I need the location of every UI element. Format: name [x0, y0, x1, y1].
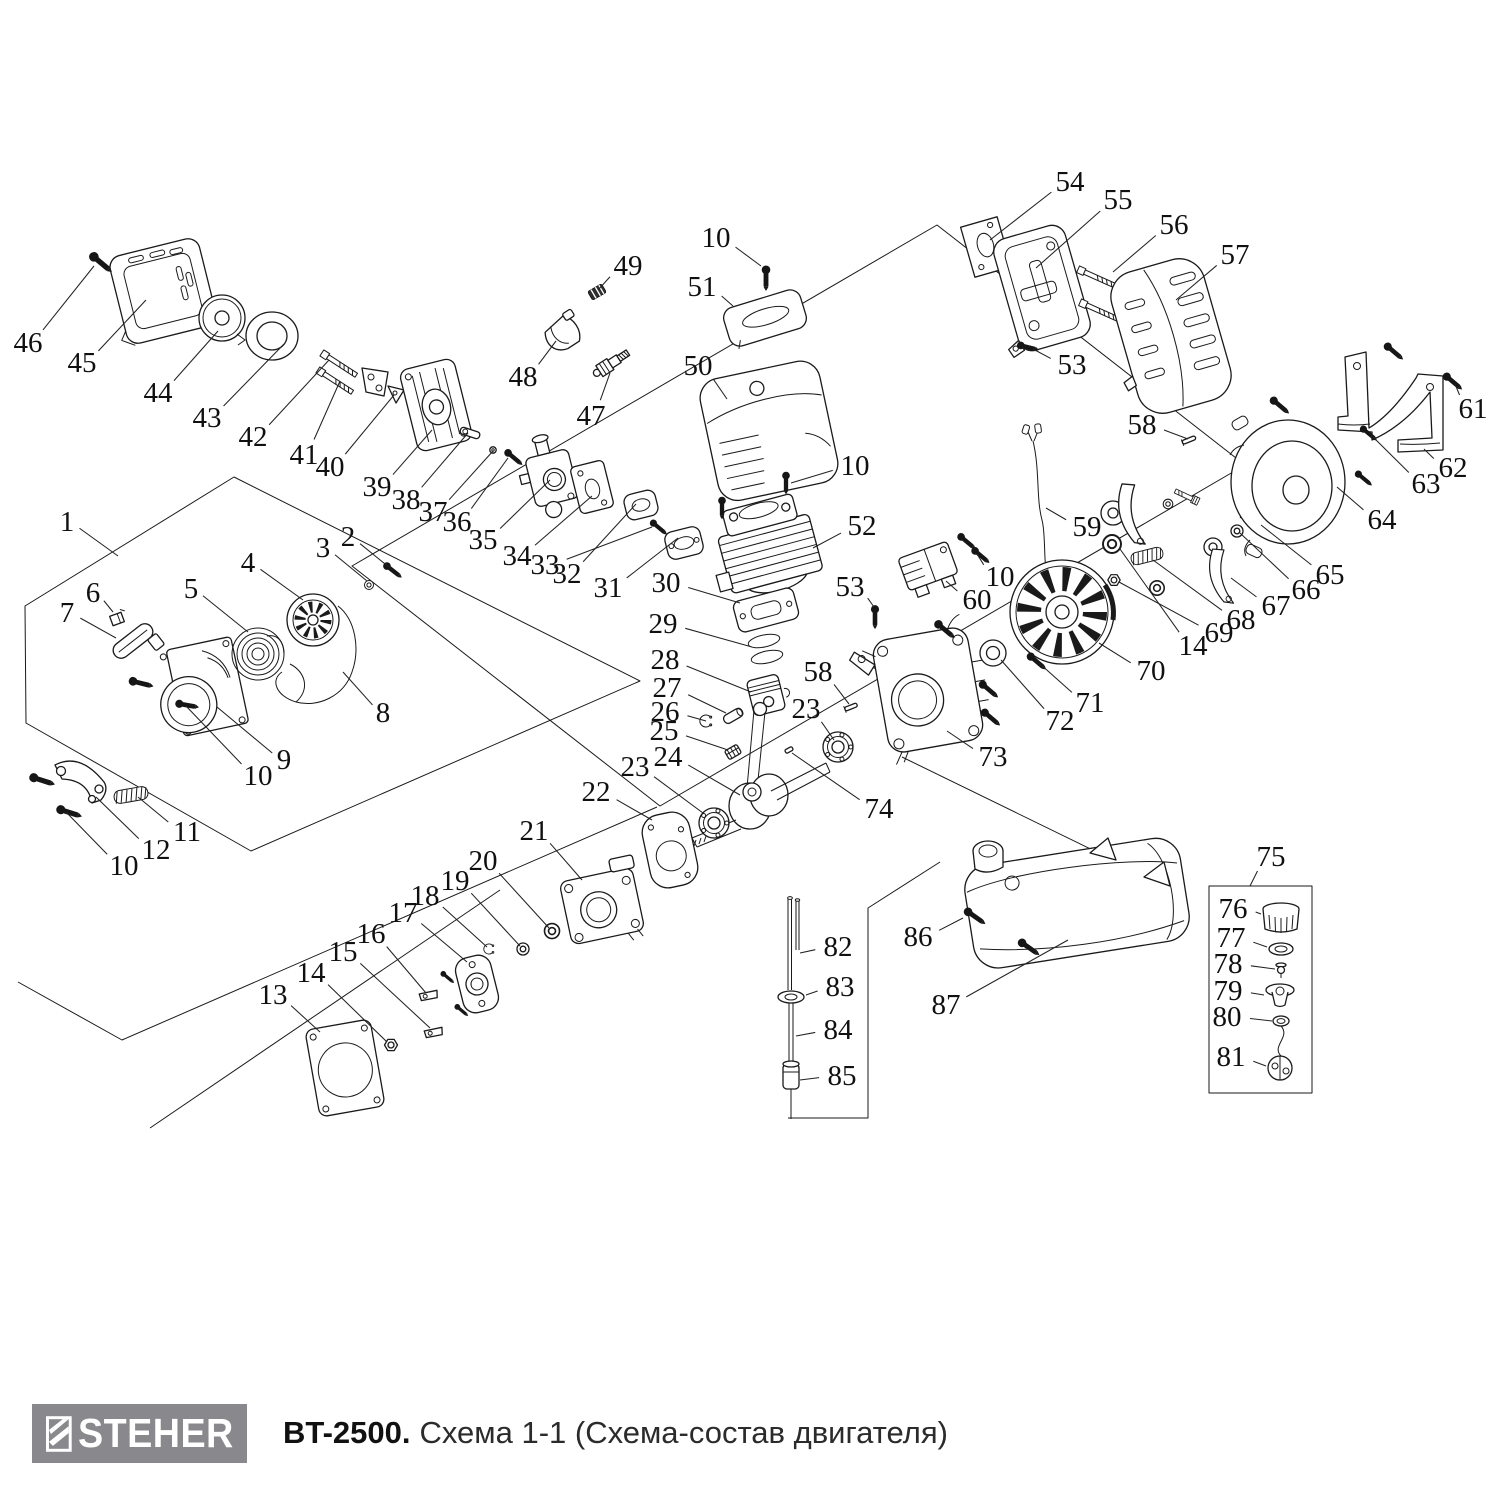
leader-line-46 — [43, 266, 94, 330]
leader-line-37 — [449, 451, 493, 500]
part-10-screw — [762, 265, 771, 290]
leader-line-53 — [1033, 349, 1051, 358]
part-label-57: 57 — [1221, 239, 1250, 271]
part-15-clip — [424, 1025, 444, 1039]
part-label-73: 73 — [979, 741, 1008, 773]
part-label-75: 75 — [1257, 841, 1286, 873]
leader-line-11 — [138, 797, 168, 822]
part-64-fan-housing — [1230, 415, 1345, 559]
part-label-39: 39 — [363, 471, 392, 503]
leader-line-71 — [1039, 663, 1072, 692]
part-label-6: 6 — [86, 577, 101, 609]
part-56-bolt — [1077, 266, 1117, 289]
diagram-title: BT-2500. Схема 1-1 (Схема-состав двигате… — [283, 1398, 948, 1468]
part-label-10: 10 — [244, 760, 273, 792]
part-72-bearing — [980, 640, 1006, 666]
part-label-44: 44 — [144, 377, 174, 409]
part-label-3: 3 — [316, 532, 331, 564]
leader-line-76 — [1256, 912, 1261, 914]
part-13-mount-plate — [305, 1019, 385, 1117]
part-label-18: 18 — [411, 880, 440, 912]
leader-line-48 — [539, 341, 556, 364]
leader-line-86 — [939, 918, 963, 930]
leader-line-67 — [1231, 578, 1256, 597]
part-4-rope-reel — [287, 594, 339, 646]
part-78-valve — [1276, 963, 1286, 978]
leader-line-84 — [796, 1032, 815, 1036]
part-label-54: 54 — [1056, 166, 1086, 198]
leader-line-41 — [314, 381, 340, 439]
leader-line-10 — [736, 247, 761, 266]
part-label-83: 83 — [826, 971, 855, 1003]
part-53-screw — [871, 605, 879, 629]
part-label-62: 62 — [1439, 452, 1468, 484]
part-label-81: 81 — [1217, 1041, 1246, 1073]
part-22-crankcase-gasket — [639, 809, 701, 891]
leader-line-80 — [1250, 1019, 1272, 1021]
exploded-diagram: 1234567891010111213141516171819202122232… — [0, 0, 1500, 1500]
leader-line-42 — [269, 360, 329, 425]
part-70-flywheel — [1010, 560, 1114, 664]
leader-line-77 — [1253, 942, 1267, 947]
part-61-screw — [1441, 371, 1465, 393]
part-76-81-fuel-cap — [1263, 903, 1299, 1080]
leader-line-83 — [806, 991, 818, 995]
part-label-8: 8 — [376, 697, 391, 729]
part-label-87: 87 — [932, 989, 961, 1021]
part-3-washer — [365, 581, 374, 590]
leader-line-27 — [688, 695, 726, 713]
part-washer — [1150, 581, 1164, 595]
steher-logo-icon — [46, 1416, 72, 1452]
leader-line-82 — [800, 950, 815, 953]
part-label-23: 23 — [792, 693, 821, 725]
leader-line-6 — [104, 601, 113, 612]
leader-line-24 — [688, 765, 740, 795]
schema-subtitle: Схема 1-1 (Схема-состав двигателя) — [420, 1415, 948, 1451]
part-label-53: 53 — [836, 571, 865, 603]
part-label-27: 27 — [653, 672, 682, 704]
part-45-air-filter-cover — [102, 236, 219, 348]
leader-line-18 — [443, 907, 487, 947]
group-line-lower-left — [18, 807, 657, 1040]
part-label-22: 22 — [582, 776, 611, 808]
part-label-40: 40 — [316, 451, 345, 483]
part-label-29: 29 — [649, 608, 678, 640]
part-screw — [977, 679, 1001, 701]
part-label-13: 13 — [259, 979, 288, 1011]
part-label-33: 33 — [531, 549, 560, 581]
part-label-14: 14 — [297, 957, 327, 989]
part-73-crankcase — [845, 612, 997, 769]
part-62-mount-bracket — [1338, 352, 1443, 452]
part-14-washer — [1103, 535, 1121, 553]
part-label-34: 34 — [503, 540, 533, 572]
leader-line-74 — [792, 753, 860, 800]
part-label-42: 42 — [239, 421, 268, 453]
leader-line-26 — [687, 716, 706, 721]
part-47-spark-plug — [590, 347, 631, 380]
part-label-7: 7 — [60, 597, 75, 629]
leader-line-58 — [1164, 430, 1188, 439]
part-label-49: 49 — [614, 250, 643, 282]
leader-line-72 — [1001, 660, 1044, 709]
part-label-10: 10 — [110, 850, 139, 882]
part-screw — [1268, 395, 1292, 417]
part-label-71: 71 — [1076, 687, 1105, 719]
part-5-recoil-spring — [232, 628, 284, 680]
leader-line-51 — [722, 296, 733, 306]
part-label-43: 43 — [193, 402, 222, 434]
leader-line-59 — [1046, 508, 1066, 520]
part-label-59: 59 — [1073, 511, 1102, 543]
part-label-64: 64 — [1368, 504, 1398, 536]
part-label-20: 20 — [469, 845, 498, 877]
part-label-46: 46 — [14, 327, 43, 359]
part-40-choke-lever — [362, 368, 404, 403]
part-label-35: 35 — [469, 524, 498, 556]
part-87-fuel-tank — [961, 835, 1193, 972]
part-label-53: 53 — [1058, 349, 1087, 381]
part-label-66: 66 — [1292, 574, 1321, 606]
part-label-76: 76 — [1219, 893, 1248, 925]
part-label-69: 69 — [1205, 617, 1234, 649]
leader-line-39 — [393, 430, 432, 475]
part-52-cylinder — [701, 490, 826, 605]
part-label-86: 86 — [904, 921, 933, 953]
part-label-2: 2 — [341, 521, 356, 553]
part-44-filter-plate — [199, 295, 245, 345]
part-68-clutch-spring — [1130, 546, 1164, 566]
part-label-80: 80 — [1213, 1001, 1242, 1033]
leader-line-21 — [550, 843, 582, 880]
leader-line-8 — [343, 672, 373, 705]
part-48-spark-plug-cap — [539, 309, 588, 356]
leader-line-13 — [291, 1006, 320, 1032]
part-9-starter-housing — [149, 636, 248, 739]
part-label-10: 10 — [702, 222, 731, 254]
leader-line-53 — [868, 598, 874, 607]
leader-line-44 — [174, 331, 218, 381]
part-label-84: 84 — [824, 1014, 854, 1046]
part-label-5: 5 — [184, 573, 199, 605]
part-50-engine-cover — [696, 357, 841, 504]
part-23-bearing-right — [823, 732, 853, 762]
leader-line-32 — [583, 504, 636, 562]
part-51-top-cover — [721, 287, 810, 351]
part-79-retainer — [1266, 984, 1294, 1007]
part-label-38: 38 — [392, 484, 421, 516]
leader-line-79 — [1251, 993, 1264, 995]
part-label-58: 58 — [1128, 409, 1157, 441]
part-label-28: 28 — [651, 644, 680, 676]
part-31-gasket — [663, 525, 705, 561]
part-36-screw — [503, 447, 525, 467]
leader-line-19 — [471, 893, 520, 946]
part-58-pin — [1181, 434, 1197, 446]
part-label-70: 70 — [1137, 655, 1166, 687]
part-49-clip — [588, 284, 607, 301]
part-74-key — [785, 746, 794, 753]
part-34-gasket — [570, 460, 615, 515]
part-60-ignition-coil — [898, 541, 962, 599]
leader-line-17 — [421, 923, 467, 962]
group-box-fuel-line — [788, 862, 940, 1118]
part-7-starter-handle — [110, 621, 165, 673]
part-label-50: 50 — [684, 350, 713, 382]
part-82-85-fuel-line — [778, 897, 804, 1119]
part-label-72: 72 — [1046, 705, 1075, 737]
part-10-screw — [28, 772, 56, 789]
part-screw — [439, 970, 456, 985]
part-label-58: 58 — [804, 656, 833, 688]
part-label-21: 21 — [520, 815, 549, 847]
leader-line-70 — [1099, 643, 1131, 663]
part-label-85: 85 — [828, 1060, 857, 1092]
part-label-14: 14 — [1179, 630, 1209, 662]
leader-line-78 — [1251, 966, 1275, 969]
leader-line-75 — [1250, 871, 1258, 886]
part-label-37: 37 — [419, 496, 448, 528]
part-66-lock-washer — [1231, 525, 1243, 537]
part-10-screw — [55, 804, 83, 821]
part-57-muffler-cover — [1095, 253, 1237, 423]
part-label-82: 82 — [824, 931, 853, 963]
model-number: BT-2500. — [283, 1415, 411, 1451]
leader-line-52 — [813, 533, 841, 548]
part-43-filter-element — [246, 312, 298, 360]
part-screw — [1382, 341, 1406, 363]
part-label-12: 12 — [142, 834, 171, 866]
leader-line-36 — [471, 458, 508, 509]
part-67-clutch-shoe — [1204, 538, 1237, 607]
steher-logo: STEHER — [32, 1404, 247, 1463]
part-screw — [128, 676, 155, 691]
part-label-23: 23 — [621, 751, 650, 783]
diagram-page: 1234567891010111213141516171819202122232… — [0, 0, 1500, 1500]
part-label-16: 16 — [357, 918, 386, 950]
part-label-1: 1 — [60, 506, 75, 538]
leader-line-10 — [66, 812, 107, 854]
leader-line-58 — [834, 684, 849, 704]
leader-line-25 — [686, 736, 728, 750]
leader-line-3 — [335, 555, 367, 581]
part-label-67: 67 — [1262, 590, 1291, 622]
part-39-filter-base — [399, 357, 474, 452]
part-label-63: 63 — [1412, 468, 1441, 500]
part-label-41: 41 — [290, 439, 319, 471]
part-label-48: 48 — [509, 361, 538, 393]
part-29-piston-rings — [747, 632, 784, 666]
part-label-74: 74 — [865, 793, 895, 825]
part-25-needle-bearing — [724, 744, 741, 760]
part-label-4: 4 — [241, 547, 256, 579]
leader-line-4 — [260, 569, 303, 600]
leader-line-33 — [567, 527, 652, 559]
leader-line-20 — [499, 873, 549, 928]
part-label-30: 30 — [652, 567, 681, 599]
part-label-51: 51 — [688, 271, 717, 303]
part-21-crankcase-half — [557, 855, 650, 953]
part-12-bracket — [55, 761, 106, 803]
part-screw — [1353, 469, 1374, 488]
leader-line-23 — [654, 777, 703, 813]
part-30-gasket — [732, 587, 800, 634]
part-label-56: 56 — [1160, 209, 1189, 241]
leader-line-28 — [687, 666, 751, 692]
leader-line-85 — [800, 1078, 819, 1080]
part-32-spacer — [622, 489, 659, 522]
part-label-10: 10 — [841, 450, 870, 482]
leader-line-5 — [203, 596, 248, 632]
part-label-11: 11 — [173, 816, 201, 848]
part-label-61: 61 — [1459, 393, 1488, 425]
footer: STEHER BT-2500. Схема 1-1 (Схема-состав … — [0, 1398, 1500, 1474]
part-label-47: 47 — [577, 400, 606, 432]
part-label-15: 15 — [329, 936, 358, 968]
leader-line-7 — [80, 618, 116, 638]
part-16-clip — [419, 988, 439, 1002]
leader-line-47 — [600, 373, 610, 400]
part-label-52: 52 — [848, 510, 877, 542]
leader-line-1 — [79, 528, 118, 556]
part-label-9: 9 — [277, 744, 292, 776]
part-label-45: 45 — [68, 347, 97, 379]
part-58-pin — [844, 701, 859, 712]
leader-line-81 — [1253, 1061, 1266, 1066]
part-label-55: 55 — [1104, 184, 1133, 216]
part-23-bearing-left — [699, 808, 729, 838]
steher-logo-text: STEHER — [78, 1413, 234, 1454]
part-label-31: 31 — [594, 572, 623, 604]
leader-line-40 — [345, 395, 394, 454]
part-label-10: 10 — [986, 561, 1015, 593]
part-label-19: 19 — [441, 865, 470, 897]
part-27-wrist-pin — [722, 707, 744, 725]
part-37-washer — [490, 447, 496, 453]
part-69-nut — [1108, 575, 1120, 586]
